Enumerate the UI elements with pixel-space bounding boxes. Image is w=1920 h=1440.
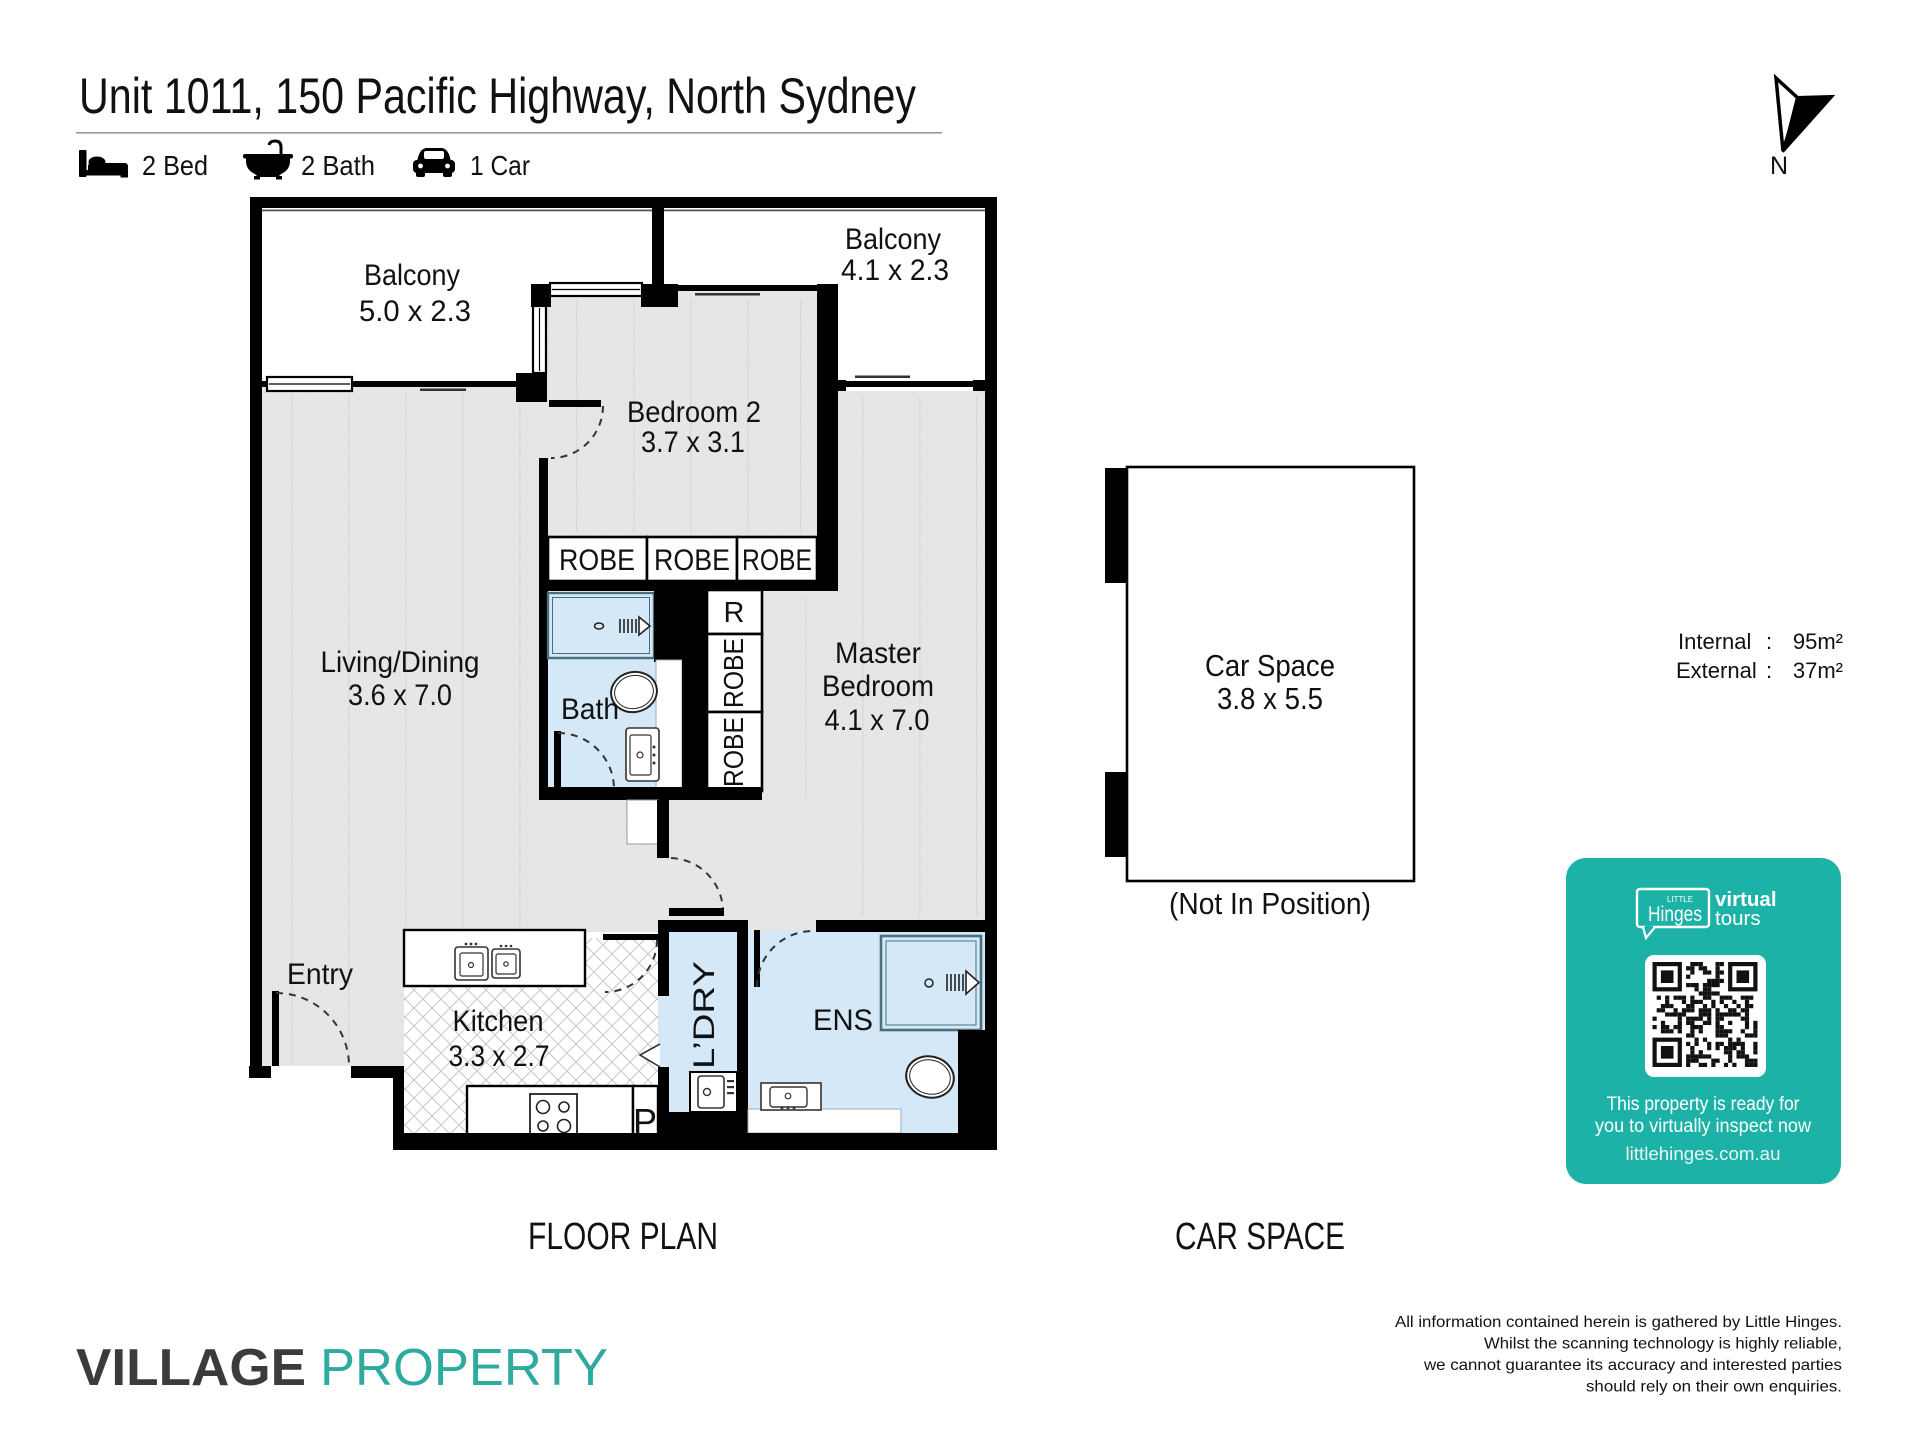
- svg-text:CAR SPACE: CAR SPACE: [1175, 1216, 1345, 1258]
- svg-text:2 Bath: 2 Bath: [301, 150, 375, 181]
- svg-text:ROBE: ROBE: [654, 544, 730, 577]
- svg-text:3.3 x 2.7: 3.3 x 2.7: [449, 1040, 550, 1073]
- svg-text:3.8 x 5.5: 3.8 x 5.5: [1217, 681, 1323, 716]
- svg-text:Bedroom 2: Bedroom 2: [627, 396, 761, 429]
- svg-text:L’DRY: L’DRY: [688, 961, 721, 1069]
- svg-text:Car Space: Car Space: [1205, 648, 1335, 683]
- svg-text:VILLAGE: VILLAGE: [76, 1339, 306, 1397]
- svg-text:3.7 x 3.1: 3.7 x 3.1: [641, 426, 745, 459]
- svg-text:1 Car: 1 Car: [470, 150, 530, 181]
- svg-text:Entry: Entry: [287, 958, 353, 991]
- svg-text:Hinges: Hinges: [1648, 903, 1702, 926]
- svg-text:37m²: 37m²: [1793, 658, 1843, 683]
- svg-text:External: External: [1676, 658, 1757, 683]
- svg-text:This property is ready for: This property is ready for: [1607, 1094, 1801, 1115]
- svg-text:All information contained here: All information contained herein is gath…: [1395, 1314, 1842, 1331]
- svg-text:2 Bed: 2 Bed: [142, 150, 208, 181]
- svg-text:Balcony: Balcony: [845, 223, 941, 256]
- svg-text:Living/Dining: Living/Dining: [321, 646, 480, 679]
- svg-text:(Not In Position): (Not In Position): [1169, 886, 1371, 921]
- svg-text:PROPERTY: PROPERTY: [320, 1339, 608, 1397]
- svg-text:you to virtually inspect now: you to virtually inspect now: [1595, 1116, 1811, 1137]
- svg-text:we cannot guarantee its accura: we cannot guarantee its accuracy and int…: [1423, 1357, 1842, 1374]
- svg-text:Bath: Bath: [561, 693, 619, 726]
- svg-text:Whilst the scanning technology: Whilst the scanning technology is highly…: [1484, 1336, 1842, 1353]
- svg-text:Unit 1011, 150 Pacific Highway: Unit 1011, 150 Pacific Highway, North Sy…: [79, 68, 916, 124]
- svg-text:4.1 x 2.3: 4.1 x 2.3: [841, 254, 949, 287]
- svg-text:5.0 x 2.3: 5.0 x 2.3: [359, 295, 471, 328]
- svg-text::: :: [1766, 658, 1772, 683]
- svg-text:Kitchen: Kitchen: [453, 1005, 544, 1038]
- svg-text:Bedroom: Bedroom: [822, 670, 934, 703]
- svg-text:3.6 x 7.0: 3.6 x 7.0: [348, 679, 452, 712]
- svg-text:N: N: [1770, 152, 1788, 180]
- svg-text:FLOOR PLAN: FLOOR PLAN: [528, 1216, 718, 1258]
- svg-text:tours: tours: [1715, 907, 1761, 930]
- svg-text:4.1 x 7.0: 4.1 x 7.0: [825, 704, 930, 737]
- svg-text:ROBE: ROBE: [559, 544, 635, 577]
- svg-text:R: R: [724, 597, 745, 629]
- svg-text:Internal: Internal: [1678, 629, 1751, 654]
- svg-text:should rely on their own enqui: should rely on their own enquiries.: [1586, 1379, 1842, 1396]
- svg-text:Master: Master: [835, 637, 921, 670]
- svg-text:littlehinges.com.au: littlehinges.com.au: [1626, 1143, 1781, 1164]
- svg-text:Balcony: Balcony: [364, 259, 460, 292]
- svg-text:ROBE: ROBE: [718, 638, 749, 708]
- svg-text:95m²: 95m²: [1793, 629, 1843, 654]
- svg-text:ROBE: ROBE: [742, 544, 812, 577]
- svg-text::: :: [1766, 629, 1772, 654]
- svg-text:ENS: ENS: [813, 1004, 873, 1037]
- svg-text:ROBE: ROBE: [718, 717, 749, 787]
